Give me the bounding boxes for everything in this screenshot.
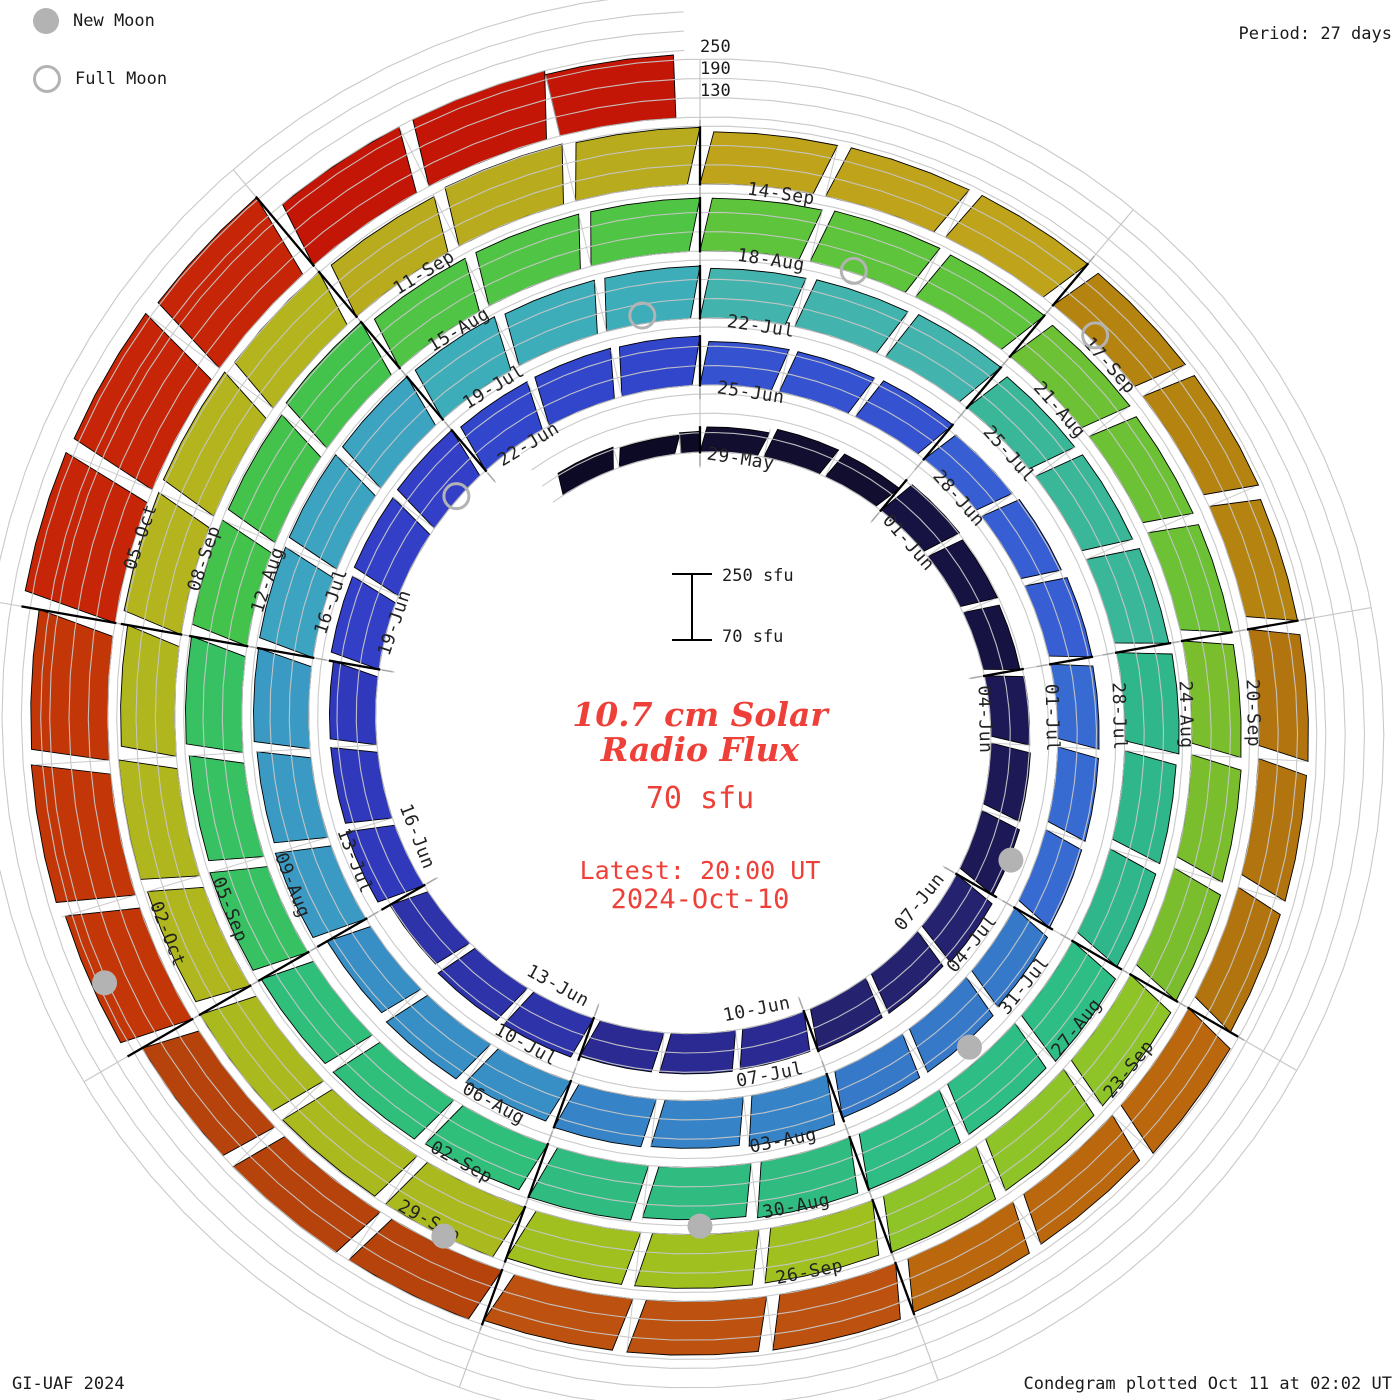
full-moon-icon bbox=[33, 65, 61, 93]
flux-scale-bar bbox=[672, 573, 712, 641]
chart-title-line2: Radio Flux bbox=[450, 732, 950, 767]
flux-bar-28-Jun bbox=[1025, 578, 1093, 657]
new-moon-label: New Moon bbox=[73, 11, 155, 31]
radial-scale-250: 250 bbox=[700, 36, 731, 58]
scale-bottom-label: 70 sfu bbox=[722, 627, 783, 647]
latest-date: 2024-Oct-10 bbox=[450, 885, 950, 914]
latest-time: Latest: 20:00 UT bbox=[450, 856, 950, 885]
scale-top-label: 250 sfu bbox=[722, 566, 794, 586]
flux-bar-24-Aug bbox=[1177, 755, 1241, 883]
radial-scale-190: 190 bbox=[700, 58, 731, 80]
date-label-28-Jul: 28-Jul bbox=[1108, 682, 1131, 750]
flux-bar-26-Sep bbox=[627, 1296, 767, 1355]
chart-title-line1: 10.7 cm Solar bbox=[450, 697, 950, 732]
full-moon-label: Full Moon bbox=[75, 69, 167, 89]
new-moon-marker-05-Jul bbox=[957, 1035, 982, 1060]
flux-bar-03-Aug bbox=[529, 1148, 649, 1221]
flux-bar-01-Jun bbox=[963, 605, 1020, 670]
radial-scale-labels: 250 190 130 bbox=[700, 36, 731, 102]
date-label-04-Jun: 04-Jun bbox=[974, 685, 997, 753]
date-label-24-Aug: 24-Aug bbox=[1175, 680, 1198, 748]
flux-bar-20-Sep bbox=[1242, 759, 1307, 902]
flux-bar-22-Jun bbox=[535, 348, 615, 426]
current-flux-value: 70 sfu bbox=[450, 781, 950, 816]
flux-bar-07-Jun bbox=[810, 978, 882, 1051]
flux-bar-11-Sep bbox=[576, 127, 700, 201]
flux-bar-27-May bbox=[619, 435, 679, 467]
flux-bar-29-May bbox=[825, 454, 899, 506]
flux-bar-02-Oct bbox=[31, 610, 113, 761]
moon-legend: New Moon Full Moon bbox=[33, 8, 167, 93]
center-annotation: 10.7 cm Solar Radio Flux 70 sfu Latest: … bbox=[450, 697, 950, 914]
flux-bar-28-Jul bbox=[1112, 751, 1176, 864]
flux-bar-03-Aug bbox=[643, 1163, 752, 1219]
plotted-timestamp: Condegram plotted Oct 11 at 02:02 UT bbox=[1024, 1374, 1392, 1394]
flux-bar-16-Jun bbox=[329, 661, 378, 744]
flux-bar-25-Jul bbox=[1086, 549, 1169, 644]
date-label-01-Jul: 01-Jul bbox=[1041, 684, 1064, 752]
period-label: Period: 27 days bbox=[1238, 24, 1392, 44]
new-moon-marker-02-Sep bbox=[431, 1224, 456, 1249]
flux-bar-04-Jul bbox=[835, 1034, 920, 1118]
new-moon-marker-06-Jun bbox=[998, 848, 1023, 873]
new-moon-marker-02-Oct bbox=[92, 970, 117, 995]
flux-bar-13-Jul bbox=[254, 648, 312, 749]
flux-bar-30-Aug bbox=[635, 1230, 759, 1289]
new-moon-marker-04-Aug bbox=[688, 1214, 713, 1239]
new-moon-icon bbox=[33, 8, 59, 34]
flux-bar-09-Aug bbox=[186, 636, 246, 752]
flux-bar-07-Jul bbox=[651, 1097, 744, 1149]
radial-scale-130: 130 bbox=[700, 80, 731, 102]
flux-bar-30-Aug bbox=[506, 1211, 640, 1284]
flux-bar-07-Jul bbox=[554, 1084, 657, 1147]
credit-label: GI-UAF 2024 bbox=[12, 1374, 125, 1394]
flux-bar-05-Sep bbox=[121, 625, 180, 756]
condegram-page: { "legend": {"new_moon": "New Moon", "fu… bbox=[0, 0, 1400, 1400]
date-label-20-Sep: 20-Sep bbox=[1242, 679, 1265, 747]
flux-bar-13-Jun bbox=[438, 948, 528, 1020]
flux-bar-27-May bbox=[680, 431, 701, 453]
